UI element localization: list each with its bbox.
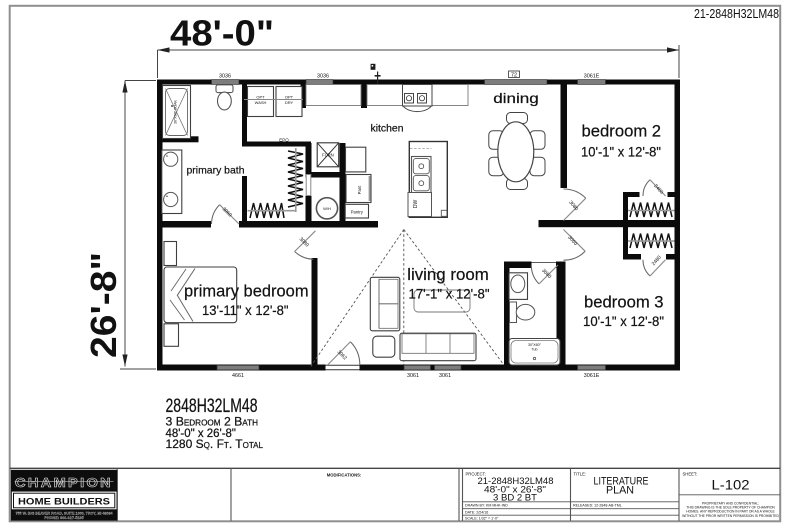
svg-text:RELEASED: 12-2848-AB-TML: RELEASED: 12-2848-AB-TML xyxy=(573,504,622,508)
svg-text:primary bath: primary bath xyxy=(187,165,245,177)
svg-text:DW: DW xyxy=(413,200,419,209)
svg-text:3036: 3036 xyxy=(219,74,231,80)
svg-text:L-102: L-102 xyxy=(712,478,750,493)
svg-text:dining: dining xyxy=(493,90,539,106)
svg-text:Pant: Pant xyxy=(357,185,362,194)
svg-text:living room: living room xyxy=(407,266,489,284)
svg-text:17'-1" x 12'-8": 17'-1" x 12'-8" xyxy=(409,286,490,301)
svg-text:DATE: 2/24/16: DATE: 2/24/16 xyxy=(465,510,488,514)
svg-text:10'-1" x 12'-8": 10'-1" x 12'-8" xyxy=(581,145,661,160)
svg-text:SCALE: 1/32" = 1'-0": SCALE: 1/32" = 1'-0" xyxy=(465,517,499,521)
svg-text:PLAN: PLAN xyxy=(606,485,634,497)
svg-text:bedroom 3: bedroom 3 xyxy=(584,293,664,311)
svg-text:MODIFICATIONS:: MODIFICATIONS: xyxy=(327,473,362,478)
svg-text:26'-8": 26'-8" xyxy=(83,252,124,358)
svg-text:W/H: W/H xyxy=(323,206,331,211)
svg-text:TITLE:: TITLE: xyxy=(574,471,587,476)
svg-text:1280 Sq. Ft. Total: 1280 Sq. Ft. Total xyxy=(166,437,264,451)
svg-text:3061E: 3061E xyxy=(584,74,600,80)
svg-text:bedroom 2: bedroom 2 xyxy=(582,122,662,140)
svg-text:Pantry: Pantry xyxy=(351,210,364,215)
svg-text:48'-0": 48'-0" xyxy=(170,13,274,54)
svg-text:DRY: DRY xyxy=(285,100,294,105)
svg-text:3036: 3036 xyxy=(317,74,329,80)
svg-text:10'-1" x 12'-8": 10'-1" x 12'-8" xyxy=(583,314,664,329)
svg-text:CHAMPION: CHAMPION xyxy=(15,476,113,490)
svg-text:3 BD 2 BT: 3 BD 2 BT xyxy=(493,492,538,502)
svg-text:4661: 4661 xyxy=(232,373,244,379)
svg-text:EPO: EPO xyxy=(279,138,289,143)
svg-text:Tub: Tub xyxy=(531,348,537,352)
svg-text:OPT: OPT xyxy=(285,95,294,100)
svg-text:13'-11" x 12'-8": 13'-11" x 12'-8" xyxy=(202,303,289,318)
svg-text:HOME BUILDERS: HOME BUILDERS xyxy=(18,496,110,507)
svg-text:36"X60" SOAK: 36"X60" SOAK xyxy=(174,99,178,124)
svg-text:72: 72 xyxy=(511,73,517,79)
svg-text:3061E: 3061E xyxy=(584,373,600,379)
svg-text:kitchen: kitchen xyxy=(371,122,404,134)
svg-text:DRAWN BY: KM MHK-IND: DRAWN BY: KM MHK-IND xyxy=(465,504,508,508)
svg-text:3061: 3061 xyxy=(439,373,451,379)
svg-text:WASH: WASH xyxy=(255,100,267,105)
svg-text:21-2848H32LM48: 21-2848H32LM48 xyxy=(694,7,779,21)
svg-text:SHEET:: SHEET: xyxy=(683,471,698,476)
svg-text:OPT: OPT xyxy=(256,95,265,100)
svg-text:30"X60": 30"X60" xyxy=(528,343,542,347)
svg-text:WITHOUT THE PRIOR WRITTEN PERM: WITHOUT THE PRIOR WRITTEN PERMISSION IS … xyxy=(682,514,779,518)
svg-text:primary bedroom: primary bedroom xyxy=(184,283,309,301)
svg-text:PHONE: 866-627-5235: PHONE: 866-627-5235 xyxy=(44,516,83,520)
svg-text:FURN: FURN xyxy=(322,153,334,158)
svg-text:3061: 3061 xyxy=(407,373,419,379)
